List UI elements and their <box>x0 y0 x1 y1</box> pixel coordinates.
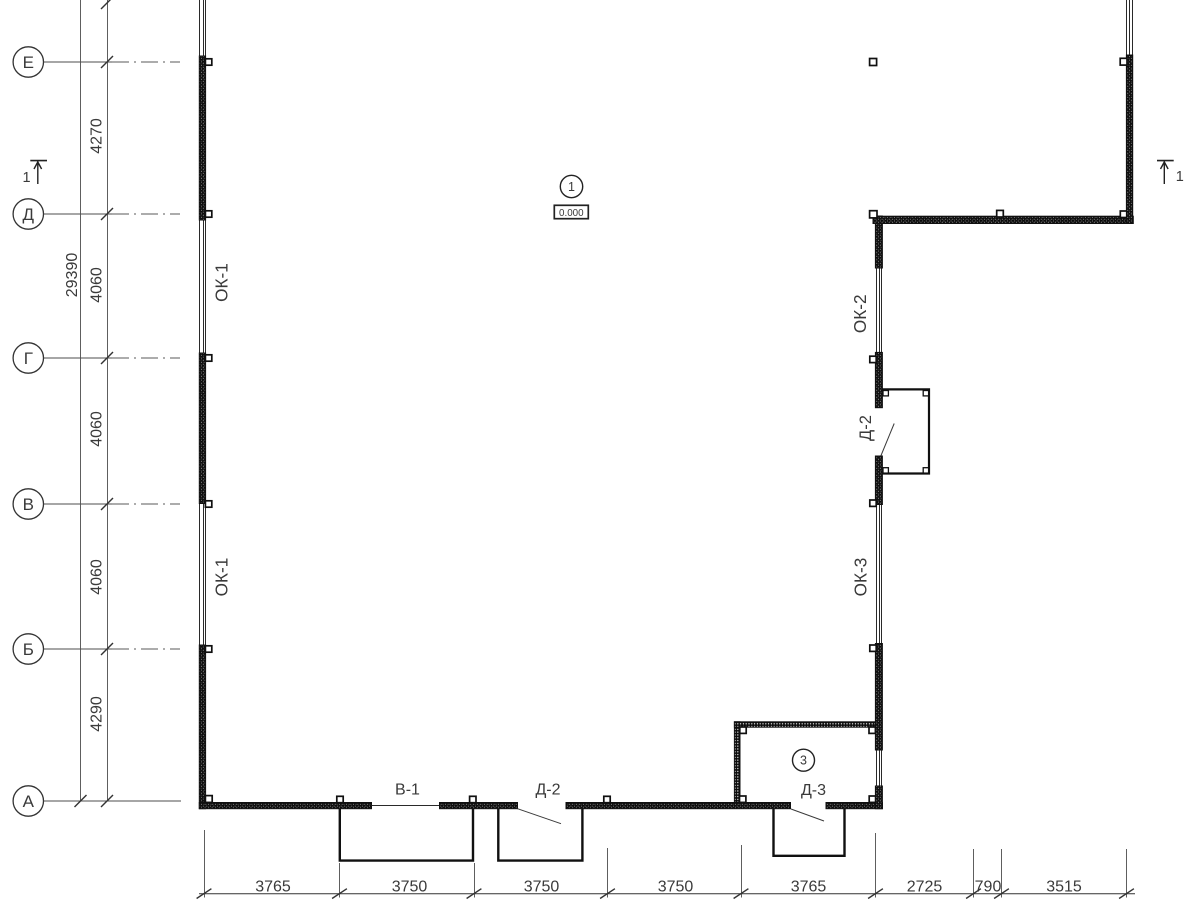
svg-text:3750: 3750 <box>658 878 694 895</box>
svg-text:790: 790 <box>975 878 1002 895</box>
svg-text:1: 1 <box>1176 169 1184 185</box>
svg-text:3765: 3765 <box>791 878 827 895</box>
svg-text:ОК-2: ОК-2 <box>850 294 870 333</box>
svg-text:3: 3 <box>800 754 807 768</box>
svg-text:ОК-1: ОК-1 <box>212 263 232 302</box>
svg-text:1: 1 <box>22 170 30 186</box>
svg-text:В: В <box>23 495 34 514</box>
svg-text:0.000: 0.000 <box>559 208 584 219</box>
svg-text:А: А <box>23 792 35 811</box>
svg-text:4270: 4270 <box>89 118 106 154</box>
svg-text:ОК-1: ОК-1 <box>212 558 232 597</box>
svg-text:Д-3: Д-3 <box>801 782 826 799</box>
svg-text:3765: 3765 <box>255 878 291 895</box>
svg-text:Д: Д <box>23 205 35 224</box>
svg-text:Е: Е <box>23 53 34 72</box>
svg-text:Б: Б <box>23 640 34 659</box>
svg-text:2725: 2725 <box>907 878 943 895</box>
svg-text:3750: 3750 <box>392 878 428 895</box>
svg-text:Д-2: Д-2 <box>857 415 875 441</box>
svg-text:Г: Г <box>24 349 33 368</box>
svg-text:ОК-3: ОК-3 <box>851 558 871 597</box>
svg-text:3515: 3515 <box>1046 878 1082 895</box>
svg-text:4060: 4060 <box>89 411 106 447</box>
svg-text:В-1: В-1 <box>395 781 420 798</box>
svg-text:29390: 29390 <box>64 253 81 298</box>
svg-text:4060: 4060 <box>89 559 106 595</box>
svg-text:4290: 4290 <box>89 696 106 732</box>
svg-text:3750: 3750 <box>524 878 560 895</box>
svg-text:1: 1 <box>568 180 575 194</box>
svg-text:4060: 4060 <box>89 267 106 303</box>
svg-text:Д-2: Д-2 <box>535 781 560 798</box>
